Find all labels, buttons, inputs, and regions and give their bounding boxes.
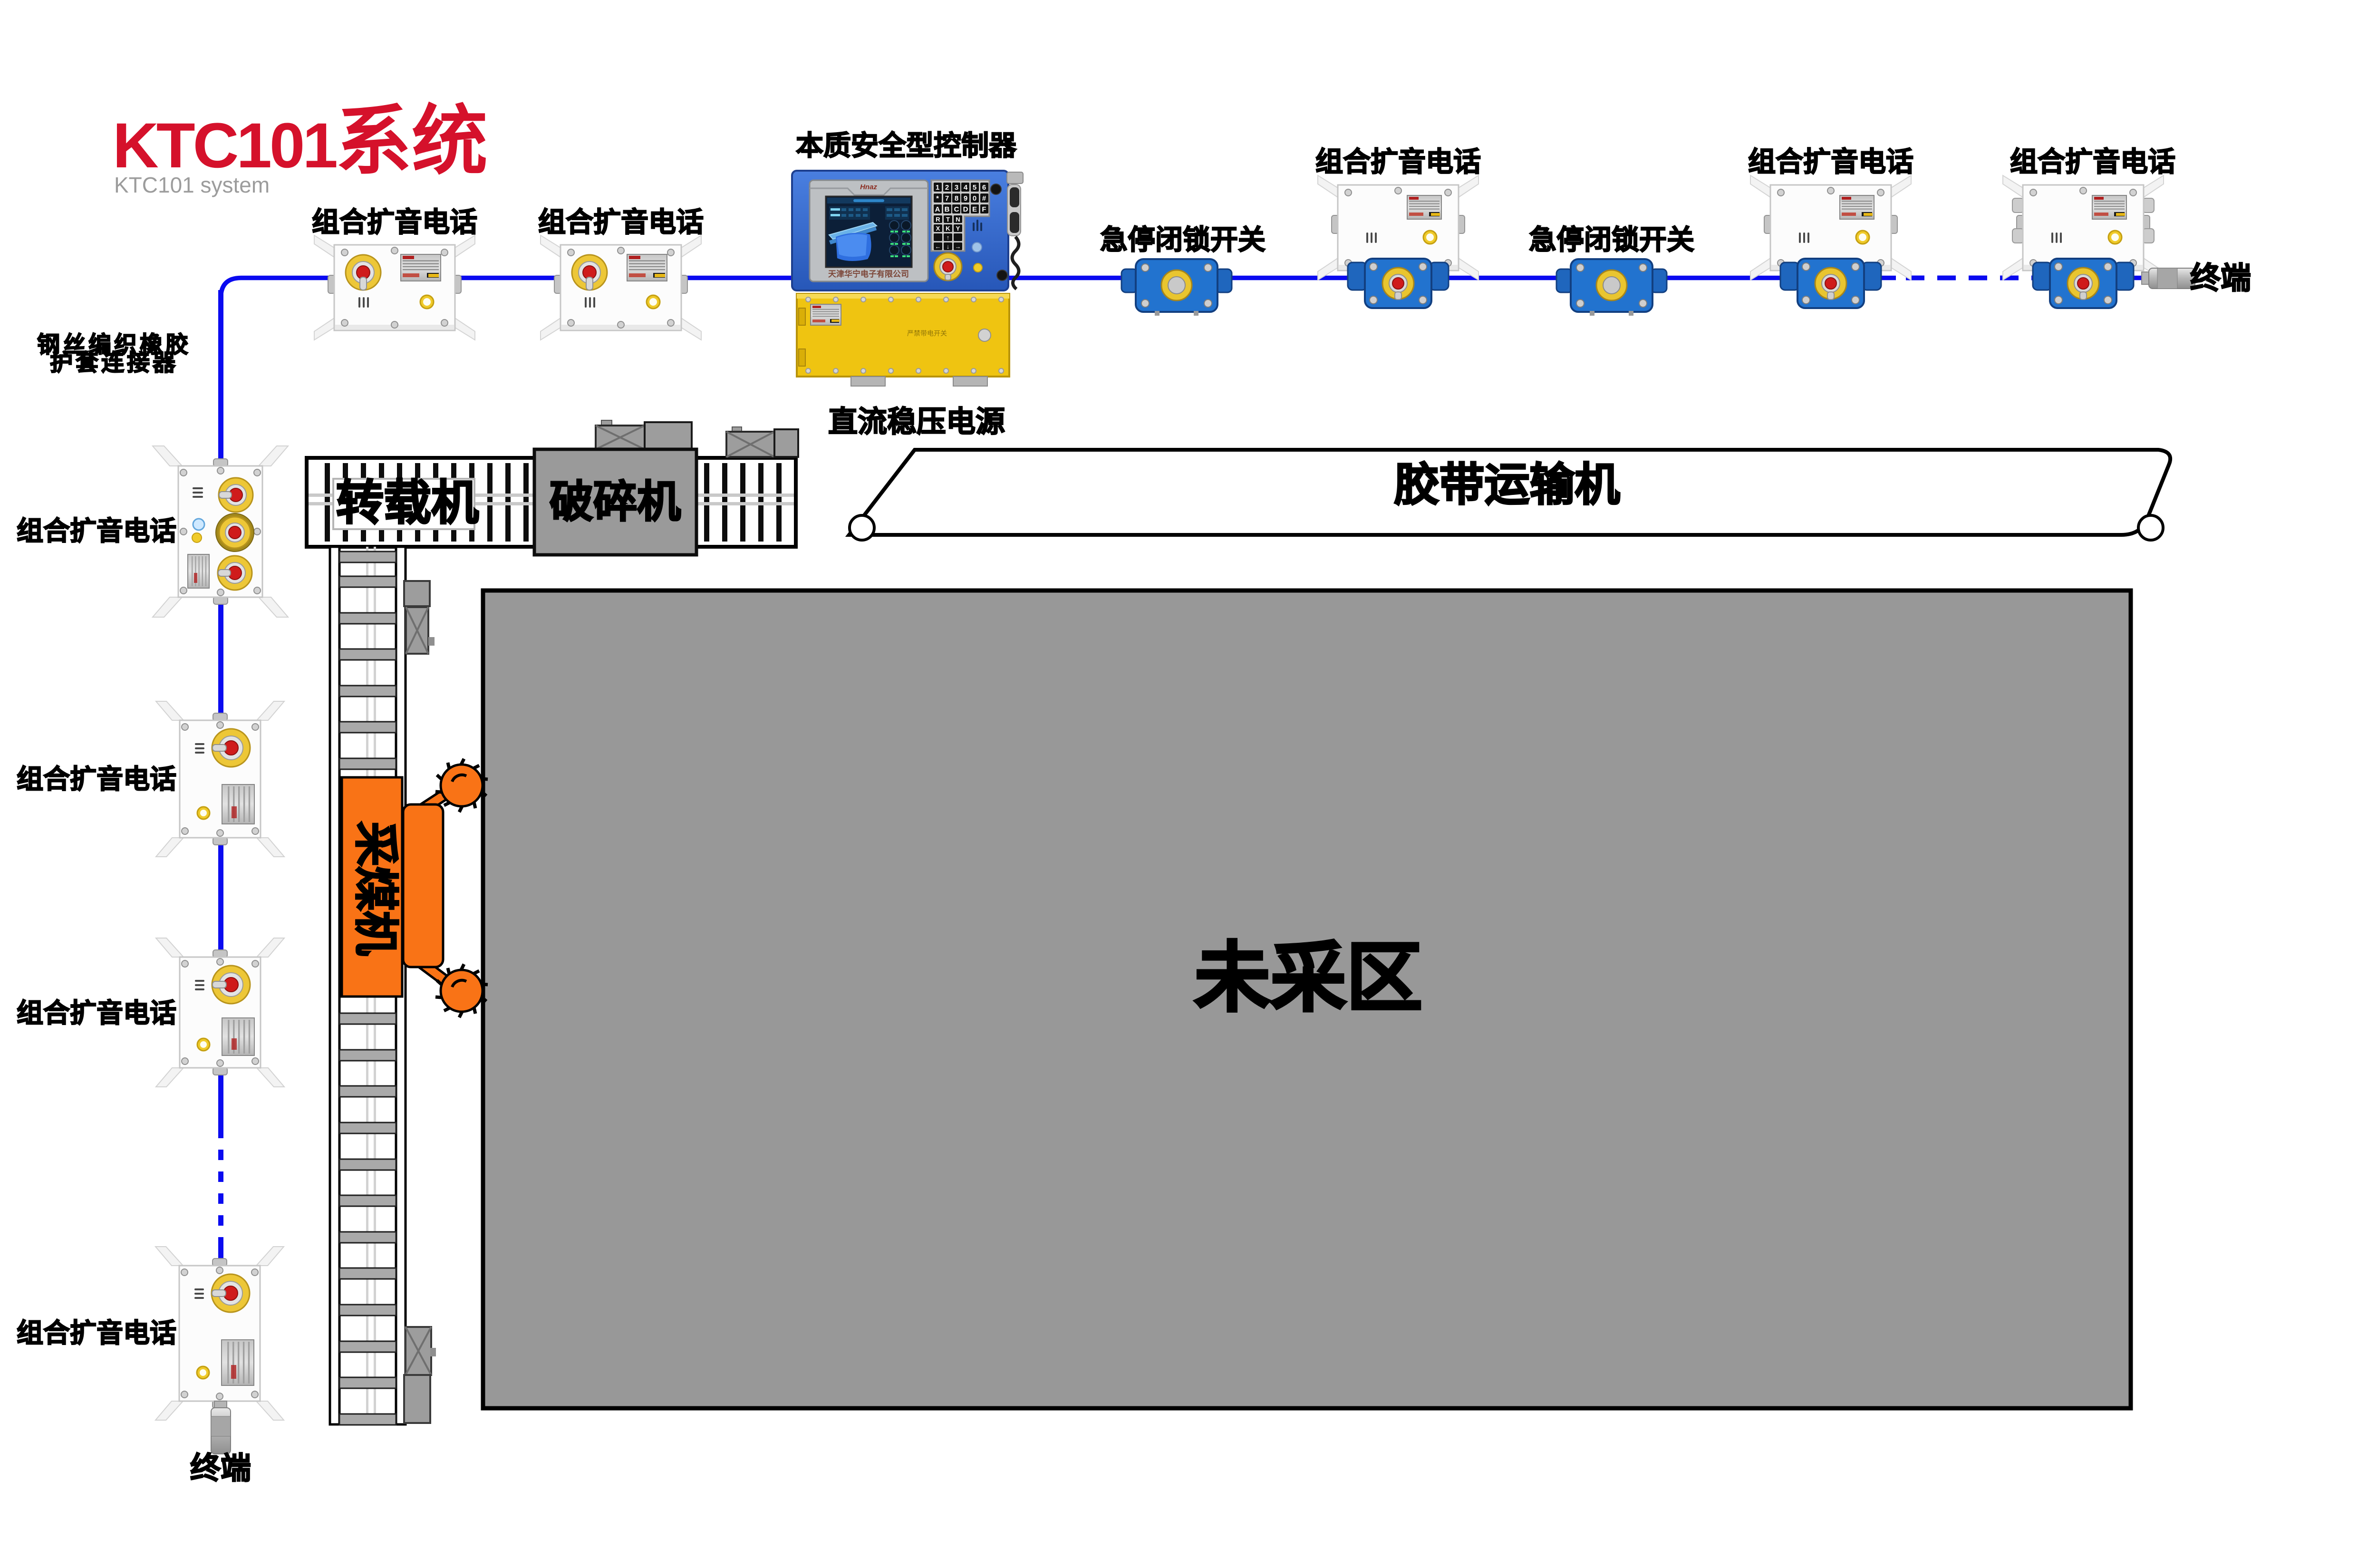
svg-text:T: T xyxy=(946,216,950,223)
svg-text:9: 9 xyxy=(964,194,967,203)
svg-text:1: 1 xyxy=(936,184,939,192)
svg-text:↓: ↓ xyxy=(947,243,950,250)
svg-text:组合扩音电话: 组合扩音电话 xyxy=(2010,146,2175,177)
svg-text:组合扩音电话: 组合扩音电话 xyxy=(17,1318,176,1348)
svg-text:终端: 终端 xyxy=(2190,261,2251,295)
svg-text:→: → xyxy=(955,243,961,250)
svg-text:转载机: 转载机 xyxy=(336,476,479,530)
svg-text:天津华宁电子有限公司: 天津华宁电子有限公司 xyxy=(828,269,909,279)
svg-text:R: R xyxy=(936,216,940,223)
svg-text:组合扩音电话: 组合扩音电话 xyxy=(1748,146,1913,177)
svg-text:本质安全型控制器: 本质安全型控制器 xyxy=(796,130,1017,161)
svg-text:*: * xyxy=(936,194,939,203)
svg-text:终端: 终端 xyxy=(190,1451,251,1485)
svg-text:A: A xyxy=(935,205,940,213)
svg-text:7: 7 xyxy=(945,194,949,203)
svg-text:组合扩音电话: 组合扩音电话 xyxy=(312,207,477,238)
svg-text:Hnaz: Hnaz xyxy=(860,183,877,191)
svg-text:Y: Y xyxy=(956,225,960,232)
svg-text:B: B xyxy=(945,205,950,213)
svg-text:护套连接器: 护套连接器 xyxy=(50,350,178,376)
svg-text:5: 5 xyxy=(973,184,976,192)
svg-text:←: ← xyxy=(935,243,941,250)
svg-text:急停闭锁开关: 急停闭锁开关 xyxy=(1100,224,1266,255)
svg-text:8: 8 xyxy=(955,194,958,203)
svg-text:KTC101 system: KTC101 system xyxy=(114,173,270,197)
svg-text:未采区: 未采区 xyxy=(1194,935,1422,1020)
svg-text:↑: ↑ xyxy=(947,234,950,241)
svg-text:D: D xyxy=(963,205,968,213)
svg-text:0: 0 xyxy=(973,194,976,203)
svg-text:K: K xyxy=(946,225,950,232)
svg-text:组合扩音电话: 组合扩音电话 xyxy=(17,764,176,794)
svg-text:3: 3 xyxy=(955,184,958,192)
svg-text:组合扩音电话: 组合扩音电话 xyxy=(17,516,176,546)
svg-text:胶带运输机: 胶带运输机 xyxy=(1394,460,1620,510)
svg-text:2: 2 xyxy=(945,184,949,192)
svg-text:6: 6 xyxy=(982,184,986,192)
svg-text:组合扩音电话: 组合扩音电话 xyxy=(538,207,704,238)
svg-text:X: X xyxy=(936,225,940,232)
svg-text:KTC101系统: KTC101系统 xyxy=(113,98,488,184)
svg-text:采煤机: 采煤机 xyxy=(351,822,401,956)
svg-text:#: # xyxy=(982,194,986,203)
svg-text:组合扩音电话: 组合扩音电话 xyxy=(17,998,176,1028)
svg-text:严禁带电开关: 严禁带电开关 xyxy=(907,329,947,337)
svg-text:直流稳压电源: 直流稳压电源 xyxy=(828,406,1005,438)
svg-text:4: 4 xyxy=(964,184,968,192)
svg-text:C: C xyxy=(954,205,959,213)
svg-text:组合扩音电话: 组合扩音电话 xyxy=(1315,146,1481,177)
svg-text:破碎机: 破碎机 xyxy=(550,478,681,526)
svg-text:急停闭锁开关: 急停闭锁开关 xyxy=(1529,224,1694,255)
svg-text:E: E xyxy=(972,205,977,213)
svg-text:N: N xyxy=(956,216,960,223)
svg-text:F: F xyxy=(982,205,986,213)
